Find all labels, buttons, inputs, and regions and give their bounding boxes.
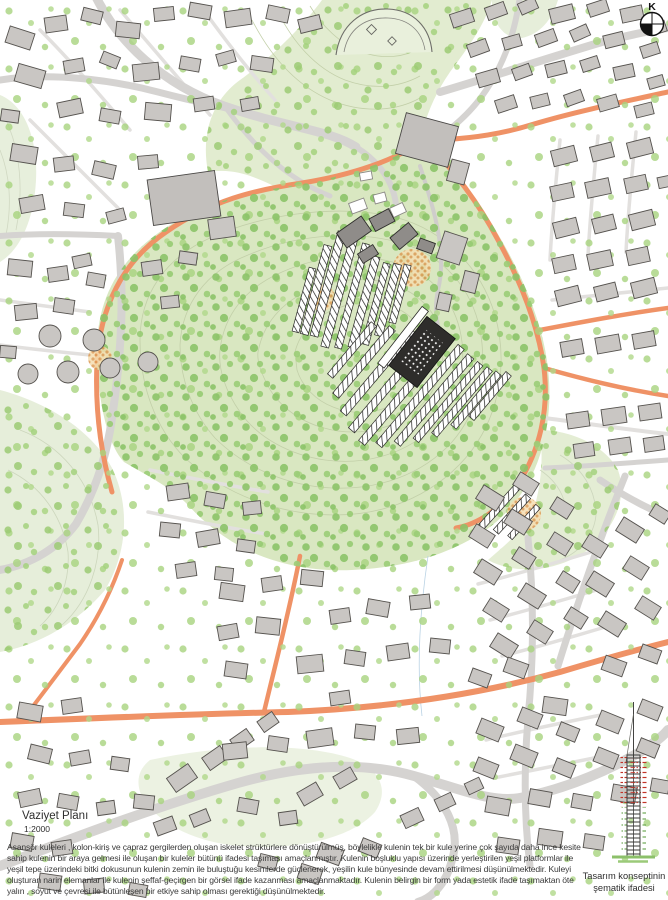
building <box>61 698 83 715</box>
building <box>643 436 665 453</box>
tank-building <box>100 358 120 378</box>
north-label: K <box>648 1 656 13</box>
building <box>366 599 390 618</box>
building <box>160 295 179 309</box>
building <box>219 582 245 601</box>
concept-caption-line2: şematik ifadesi <box>580 883 668 895</box>
building <box>528 789 552 808</box>
building <box>583 834 605 851</box>
building <box>179 56 201 72</box>
tank-building <box>18 364 38 384</box>
building <box>115 21 140 38</box>
building <box>141 260 163 277</box>
building <box>147 170 221 225</box>
building <box>278 810 298 825</box>
building <box>300 569 323 586</box>
building <box>144 102 171 121</box>
tank-building <box>138 352 158 372</box>
building <box>178 251 197 265</box>
site-plan-sheet: K Vaziyet Planı 1:2000 Asansör kuleleri … <box>0 0 668 900</box>
building <box>429 638 450 654</box>
building <box>396 727 419 744</box>
building <box>217 623 239 640</box>
building <box>133 794 154 810</box>
building <box>329 608 351 625</box>
building <box>57 793 79 810</box>
plan-title: Vaziyet Planı <box>22 810 88 822</box>
building <box>0 109 19 123</box>
building <box>63 202 84 217</box>
concept-caption: Tasarım konseptinin şematik ifadesi <box>580 871 668 894</box>
building <box>250 56 274 73</box>
building <box>329 690 351 706</box>
building <box>255 617 281 635</box>
building <box>208 216 237 239</box>
building <box>99 108 121 124</box>
building <box>153 6 174 21</box>
building <box>224 8 252 27</box>
building <box>359 171 372 181</box>
building <box>650 778 668 794</box>
building <box>53 156 75 172</box>
concept-caption-line1: Tasarım konseptinin <box>580 871 668 883</box>
building <box>0 345 16 358</box>
building <box>86 272 106 288</box>
building <box>409 594 430 610</box>
building <box>53 298 75 315</box>
building <box>47 266 69 283</box>
building <box>175 562 197 579</box>
building <box>344 650 366 667</box>
building <box>10 144 38 165</box>
building <box>240 97 260 112</box>
building <box>608 437 632 455</box>
building <box>7 259 33 277</box>
building <box>159 522 180 538</box>
site-plan-map: K <box>0 0 668 900</box>
building <box>137 155 158 170</box>
building <box>236 539 255 553</box>
building <box>44 15 68 33</box>
building <box>632 331 656 350</box>
tank-building <box>39 325 61 347</box>
tank-building <box>83 329 105 351</box>
building <box>306 728 334 748</box>
building <box>222 742 248 760</box>
building <box>132 62 160 82</box>
building <box>69 750 91 766</box>
building <box>542 696 568 715</box>
building <box>386 643 410 661</box>
building <box>601 406 627 425</box>
building <box>214 567 233 582</box>
building <box>96 800 116 815</box>
building <box>237 797 259 814</box>
building <box>566 411 590 429</box>
design-description-paragraph: Asansör kuleleri , kolon-kiriş ve çapraz… <box>7 842 585 897</box>
building <box>560 339 584 358</box>
building <box>224 661 248 679</box>
building <box>242 501 261 516</box>
building <box>354 724 375 740</box>
building <box>638 403 662 421</box>
building <box>196 529 220 548</box>
building <box>571 793 593 810</box>
building <box>296 654 324 674</box>
tank-building <box>57 361 79 383</box>
building <box>110 756 130 771</box>
plan-scale: 1:2000 <box>24 824 50 834</box>
building <box>63 58 85 74</box>
building <box>204 491 226 508</box>
building <box>573 442 595 459</box>
building <box>657 175 668 188</box>
building <box>267 736 289 753</box>
building <box>166 483 190 501</box>
building <box>261 576 283 593</box>
building <box>193 96 215 112</box>
building <box>14 303 37 320</box>
